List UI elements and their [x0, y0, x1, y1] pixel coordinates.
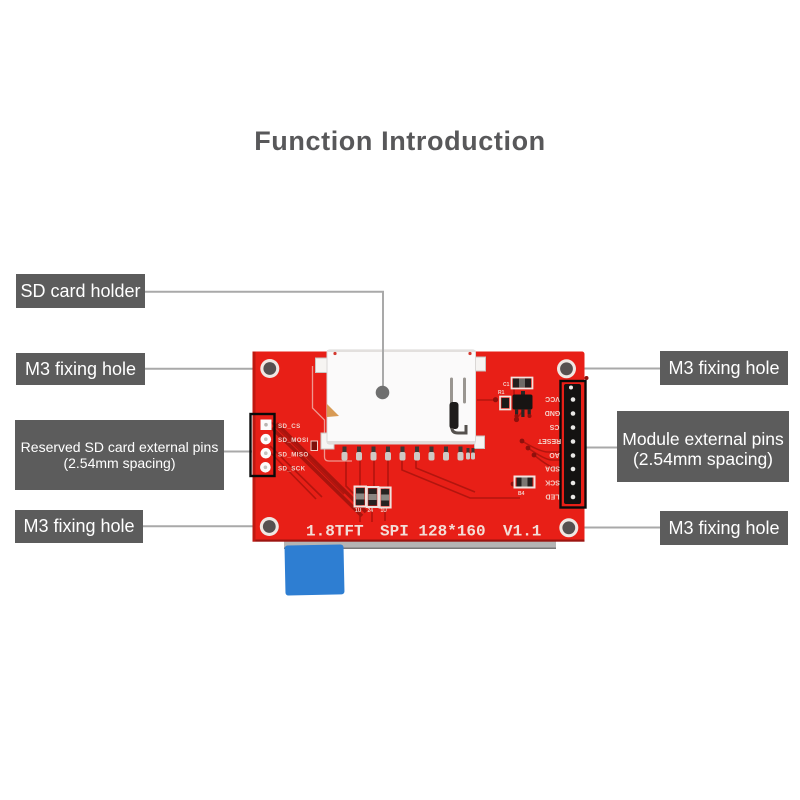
svg-text:R1: R1: [498, 390, 505, 396]
svg-text:1U: 1U: [355, 508, 362, 514]
svg-text:C1: C1: [503, 382, 510, 388]
svg-text:SD_MOSI: SD_MOSI: [278, 437, 309, 444]
svg-text:CS: CS: [549, 423, 559, 430]
svg-text:V1.1: V1.1: [503, 523, 541, 541]
svg-text:SD_MISO: SD_MISO: [278, 452, 309, 459]
svg-text:SDA: SDA: [545, 465, 560, 472]
svg-text:GND: GND: [545, 409, 561, 416]
svg-text:1.8TFT: 1.8TFT: [306, 523, 364, 541]
svg-text:VCC: VCC: [545, 395, 560, 402]
svg-text:SCK: SCK: [545, 479, 560, 486]
svg-text:AO: AO: [549, 451, 560, 458]
svg-text:SD_CS: SD_CS: [278, 423, 301, 430]
svg-text:24: 24: [368, 508, 374, 514]
svg-text:SPI 128*160: SPI 128*160: [380, 523, 486, 541]
svg-text:B4: B4: [518, 491, 525, 497]
svg-text:RESET: RESET: [537, 437, 561, 444]
svg-text:LED: LED: [546, 493, 560, 500]
svg-text:1U: 1U: [381, 508, 388, 514]
svg-text:SD_SCK: SD_SCK: [278, 466, 306, 473]
